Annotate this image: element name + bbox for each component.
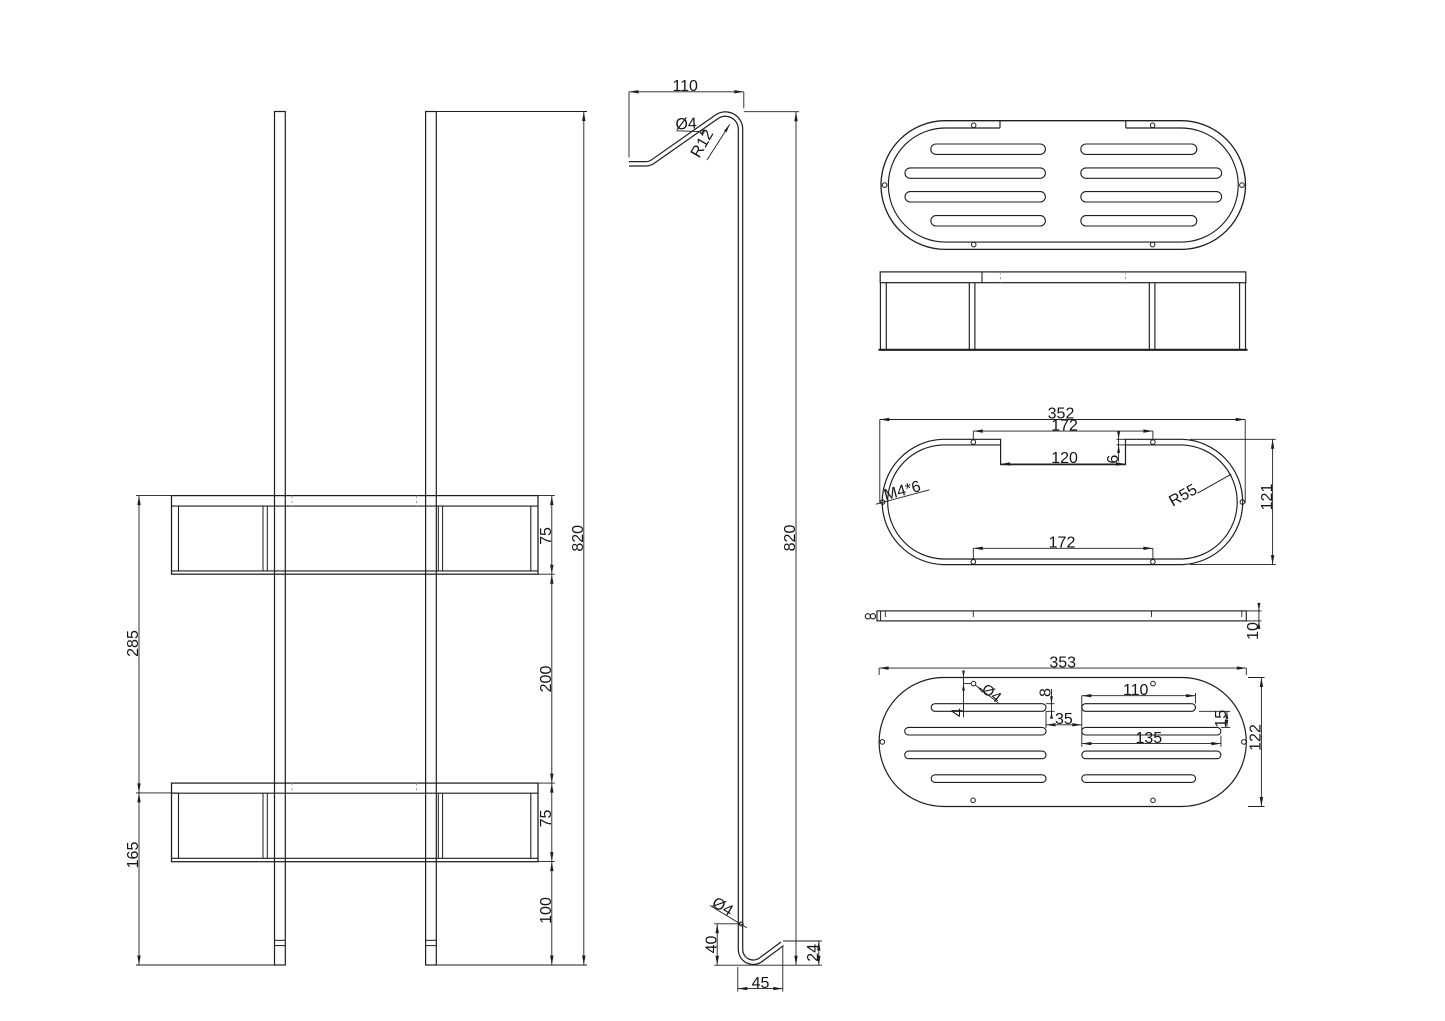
svg-text:122: 122 [1248, 724, 1265, 751]
svg-text:8: 8 [1038, 688, 1055, 697]
svg-text:75: 75 [538, 810, 555, 828]
svg-text:4: 4 [950, 708, 967, 717]
svg-text:135: 135 [1135, 730, 1162, 747]
svg-text:172: 172 [1049, 535, 1076, 552]
svg-text:172: 172 [1051, 417, 1078, 434]
svg-text:121: 121 [1259, 484, 1276, 511]
svg-text:353: 353 [1049, 654, 1076, 671]
svg-text:75: 75 [538, 527, 555, 545]
svg-text:15: 15 [1213, 710, 1230, 728]
svg-text:820: 820 [570, 525, 587, 552]
svg-text:10: 10 [1245, 622, 1262, 640]
svg-text:35: 35 [1055, 711, 1073, 728]
svg-text:6: 6 [1105, 455, 1122, 464]
svg-text:165: 165 [125, 842, 142, 869]
svg-text:820: 820 [782, 525, 799, 552]
svg-text:110: 110 [672, 78, 698, 95]
svg-text:40: 40 [703, 936, 720, 954]
svg-text:120: 120 [1051, 450, 1078, 467]
svg-text:Ø4: Ø4 [675, 115, 697, 133]
svg-text:285: 285 [125, 630, 142, 657]
svg-text:200: 200 [538, 666, 555, 693]
svg-text:110: 110 [1123, 682, 1149, 699]
svg-text:45: 45 [752, 975, 770, 992]
svg-text:24: 24 [805, 944, 822, 962]
svg-text:100: 100 [538, 897, 555, 924]
